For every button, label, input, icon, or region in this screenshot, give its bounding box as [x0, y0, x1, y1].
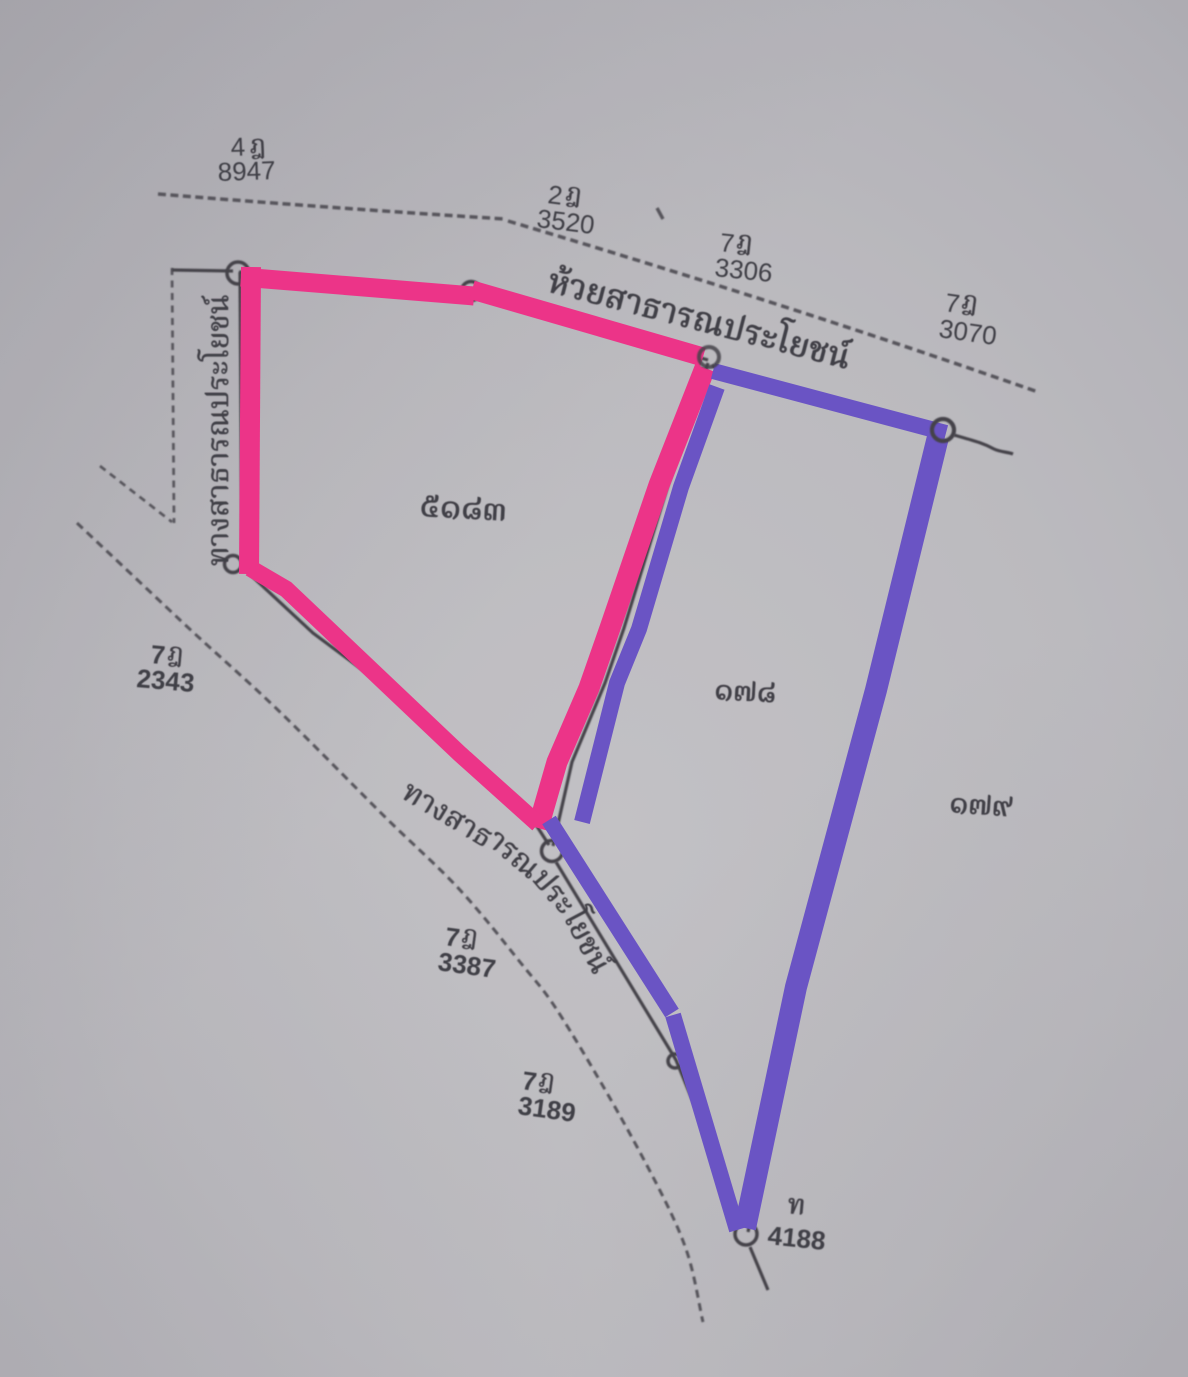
- svg-text:3306: 3306: [713, 252, 774, 288]
- svg-text:2343: 2343: [135, 663, 195, 698]
- svg-text:4188: 4188: [766, 1220, 827, 1256]
- svg-text:8947: 8947: [217, 155, 276, 187]
